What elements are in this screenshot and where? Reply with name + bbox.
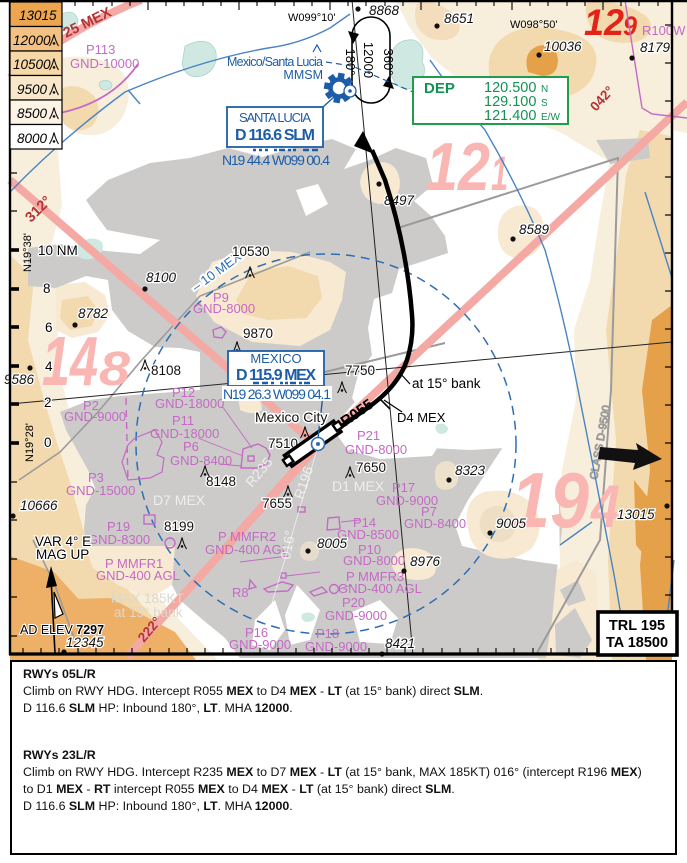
svg-text:8782: 8782	[78, 306, 109, 321]
svg-text:GND-8300: GND-8300	[88, 532, 150, 547]
svg-text:9586: 9586	[4, 372, 35, 387]
svg-text:W098°50': W098°50'	[510, 19, 557, 31]
svg-text:121.400: 121.400	[484, 108, 536, 124]
svg-text:9: 9	[623, 11, 637, 41]
svg-text:0: 0	[44, 435, 52, 450]
svg-text:9870: 9870	[243, 326, 273, 341]
svg-text:D4 MEX: D4 MEX	[397, 410, 446, 425]
svg-text:SANTA LUCIA: SANTA LUCIA	[239, 110, 311, 125]
svg-text:TA 18500: TA 18500	[606, 635, 668, 651]
svg-text:N19 44.4 W099 00.4: N19 44.4 W099 00.4	[222, 152, 330, 168]
svg-text:D 116.6 SLM: D 116.6 SLM	[235, 127, 315, 144]
svg-text:8108: 8108	[151, 363, 181, 378]
svg-text:8589: 8589	[519, 222, 550, 237]
svg-text:12: 12	[426, 129, 490, 205]
svg-text:MAX 185KT: MAX 185KT	[111, 591, 184, 606]
svg-text:MEXICO: MEXICO	[250, 351, 301, 366]
svg-text:DEP: DEP	[424, 80, 455, 97]
svg-text:10 NM: 10 NM	[38, 243, 78, 258]
svg-text:MAG UP: MAG UP	[36, 547, 89, 562]
svg-text:D7 MEX: D7 MEX	[153, 492, 206, 508]
svg-text:9500: 9500	[17, 82, 48, 97]
svg-text:8651: 8651	[444, 11, 474, 26]
svg-text:GND-8400: GND-8400	[404, 516, 466, 531]
svg-text:10500: 10500	[13, 57, 51, 72]
svg-text:TRL 195: TRL 195	[609, 618, 665, 634]
svg-text:at 15° bank: at 15° bank	[114, 605, 183, 620]
svg-text:7750: 7750	[345, 363, 375, 378]
svg-text:10666: 10666	[20, 498, 58, 513]
svg-text:GND-400 AGL: GND-400 AGL	[96, 568, 180, 583]
svg-text:W099°10': W099°10'	[288, 12, 335, 24]
svg-text:8976: 8976	[410, 554, 441, 569]
svg-text:8500: 8500	[17, 106, 48, 121]
svg-text:GND-400 AGL: GND-400 AGL	[338, 581, 422, 596]
svg-text:P6: P6	[183, 439, 199, 454]
svg-text:D1 MEX: D1 MEX	[332, 478, 385, 494]
svg-text:GND-10000: GND-10000	[70, 56, 139, 71]
svg-text:360°: 360°	[381, 49, 396, 76]
svg-text:GND-15000: GND-15000	[66, 483, 135, 498]
svg-text:GND-8000: GND-8000	[343, 553, 405, 568]
svg-text:12345: 12345	[66, 635, 104, 650]
svg-text:2: 2	[44, 395, 52, 410]
svg-text:8323: 8323	[455, 463, 486, 478]
svg-text:10036: 10036	[544, 39, 582, 54]
svg-text:8100: 8100	[146, 270, 177, 285]
svg-text:Mexico/Santa Lucia: Mexico/Santa Lucia	[227, 55, 323, 69]
svg-text:N: N	[541, 84, 548, 95]
svg-text:13015: 13015	[617, 507, 655, 522]
svg-text:180°: 180°	[343, 49, 358, 76]
svg-text:Mexico City: Mexico City	[255, 409, 327, 425]
svg-text:8005: 8005	[317, 536, 348, 551]
svg-text:GND-18000: GND-18000	[155, 396, 224, 411]
svg-text:R100W: R100W	[642, 23, 686, 38]
svg-text:D 115.9 MEX: D 115.9 MEX	[236, 367, 316, 384]
svg-text:MMSM: MMSM	[283, 68, 323, 82]
svg-text:13015: 13015	[19, 8, 57, 23]
svg-text:8: 8	[43, 281, 51, 296]
svg-text:R8: R8	[232, 585, 249, 600]
svg-text:P113: P113	[86, 42, 115, 57]
svg-text:7650: 7650	[356, 460, 386, 475]
svg-text:8421: 8421	[385, 636, 415, 651]
svg-text:4: 4	[45, 359, 53, 374]
svg-text:GND-9000: GND-9000	[325, 608, 387, 623]
svg-text:25 MEX: 25 MEX	[61, 4, 115, 41]
svg-text:9005: 9005	[496, 516, 527, 531]
svg-text:N19 26.3 W099 04.1: N19 26.3 W099 04.1	[223, 386, 331, 402]
svg-text:6: 6	[45, 320, 53, 335]
svg-text:at 15° bank: at 15° bank	[412, 376, 481, 391]
svg-text:N19°28': N19°28'	[24, 423, 36, 462]
svg-text:E/W: E/W	[541, 112, 560, 123]
svg-text:GND-8000: GND-8000	[193, 301, 255, 316]
svg-text:AD ELEV 7297: AD ELEV 7297	[20, 623, 104, 637]
svg-text:8868: 8868	[369, 3, 400, 18]
svg-text:12: 12	[584, 2, 624, 43]
svg-text:12000: 12000	[13, 33, 51, 48]
svg-text:N19°38': N19°38'	[22, 233, 34, 272]
svg-text:GND-8400: GND-8400	[170, 453, 232, 468]
svg-text:GND-400 AGL: GND-400 AGL	[205, 542, 289, 557]
svg-text:8: 8	[99, 343, 130, 396]
svg-text:GND-9000: GND-9000	[64, 409, 126, 424]
svg-text:10530: 10530	[232, 244, 270, 259]
svg-text:8199: 8199	[164, 519, 194, 534]
svg-text:7655: 7655	[262, 496, 292, 511]
svg-text:GND-8000: GND-8000	[345, 442, 407, 457]
svg-text:P21: P21	[357, 428, 380, 443]
svg-text:8179: 8179	[640, 40, 671, 55]
svg-text:8148: 8148	[206, 474, 236, 489]
svg-text:S: S	[541, 98, 548, 109]
svg-text:8000: 8000	[17, 131, 48, 146]
